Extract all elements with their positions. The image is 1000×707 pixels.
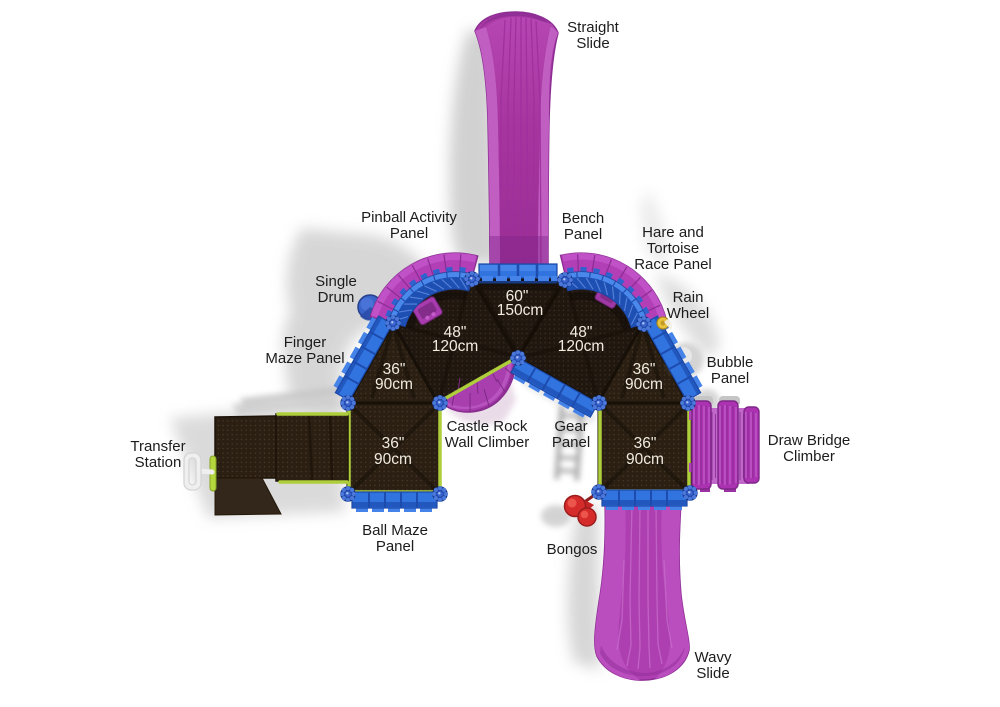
svg-text:90cm: 90cm xyxy=(375,376,413,393)
svg-text:Drum: Drum xyxy=(318,289,355,306)
svg-text:Slide: Slide xyxy=(576,35,609,52)
svg-text:90cm: 90cm xyxy=(625,376,663,393)
svg-text:Panel: Panel xyxy=(564,226,602,243)
svg-text:Ball Maze: Ball Maze xyxy=(362,522,428,539)
svg-text:Panel: Panel xyxy=(390,225,428,242)
svg-text:Wavy: Wavy xyxy=(695,649,732,666)
svg-text:Bubble: Bubble xyxy=(707,354,754,371)
svg-text:Castle Rock: Castle Rock xyxy=(447,418,528,435)
svg-text:Panel: Panel xyxy=(552,434,590,451)
svg-text:Finger: Finger xyxy=(284,334,327,351)
svg-text:90cm: 90cm xyxy=(374,451,412,468)
svg-text:Pinball Activity: Pinball Activity xyxy=(361,209,457,226)
svg-text:Single: Single xyxy=(315,273,357,290)
svg-text:120cm: 120cm xyxy=(432,338,479,355)
svg-text:Maze Panel: Maze Panel xyxy=(265,350,344,367)
svg-text:Slide: Slide xyxy=(696,665,729,682)
svg-text:Panel: Panel xyxy=(376,538,414,555)
svg-text:120cm: 120cm xyxy=(558,338,605,355)
svg-text:Gear: Gear xyxy=(554,418,587,435)
svg-text:Rain: Rain xyxy=(673,289,704,306)
svg-text:Wall Climber: Wall Climber xyxy=(445,434,529,451)
svg-text:150cm: 150cm xyxy=(497,302,544,319)
svg-text:Bench: Bench xyxy=(562,210,605,227)
svg-text:90cm: 90cm xyxy=(626,451,664,468)
svg-text:Station: Station xyxy=(135,454,182,471)
svg-text:Transfer: Transfer xyxy=(130,438,185,455)
svg-text:Climber: Climber xyxy=(783,448,835,465)
svg-text:Race Panel: Race Panel xyxy=(634,256,712,273)
svg-text:Bongos: Bongos xyxy=(547,541,598,558)
svg-text:36": 36" xyxy=(634,435,657,452)
svg-text:Tortoise: Tortoise xyxy=(647,240,700,257)
svg-text:36": 36" xyxy=(382,435,405,452)
svg-text:Draw Bridge: Draw Bridge xyxy=(768,432,851,449)
svg-text:Panel: Panel xyxy=(711,370,749,387)
svg-text:Hare and: Hare and xyxy=(642,224,704,241)
svg-text:Straight: Straight xyxy=(567,19,620,36)
svg-text:Wheel: Wheel xyxy=(667,305,710,322)
